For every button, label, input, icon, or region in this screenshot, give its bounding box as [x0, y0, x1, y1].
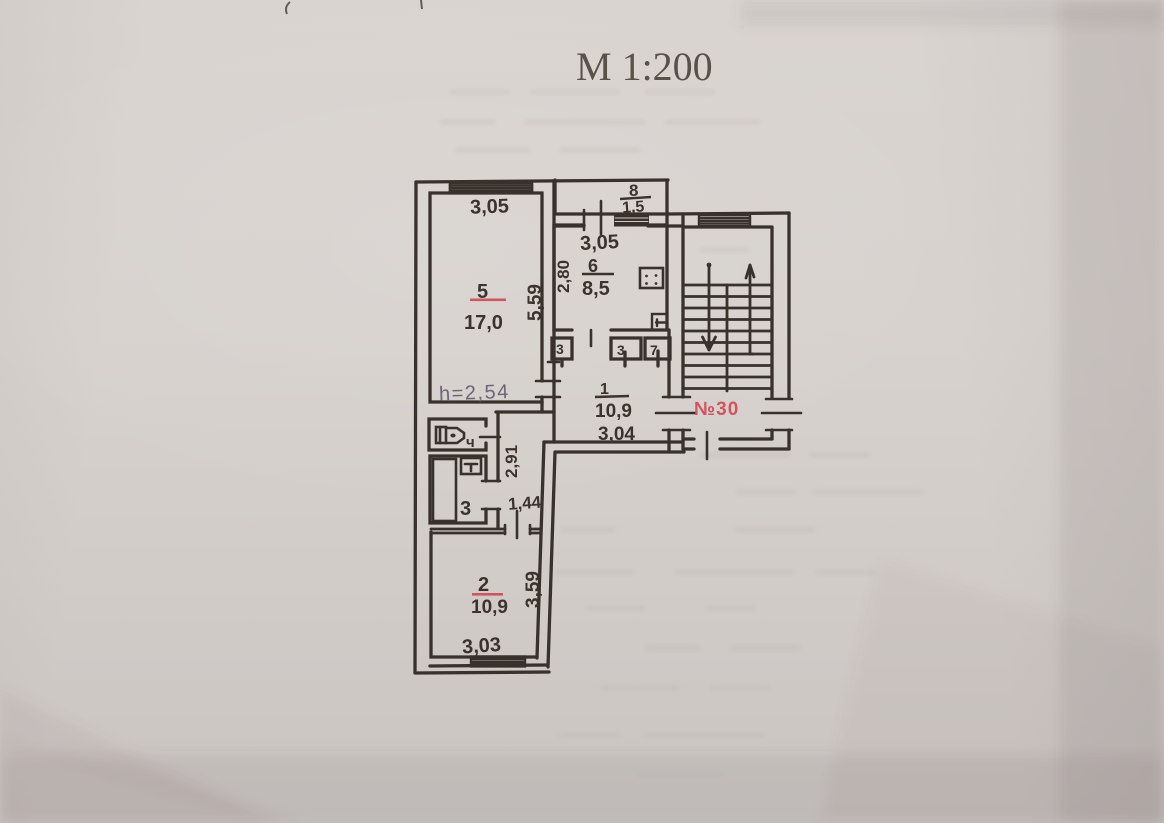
- svg-text:3,03: 3,03: [461, 634, 501, 659]
- svg-text:10,9: 10,9: [595, 401, 632, 422]
- svg-text:1,44: 1,44: [507, 493, 542, 514]
- svg-text:2,80: 2,80: [554, 260, 573, 293]
- svg-text:5,59: 5,59: [525, 284, 546, 321]
- svg-text:1,5: 1,5: [622, 198, 645, 217]
- svg-text:3: 3: [460, 498, 471, 520]
- svg-text:3: 3: [617, 342, 625, 358]
- svg-text:№30: №30: [694, 399, 739, 420]
- svg-text:3,04: 3,04: [598, 424, 635, 445]
- svg-text:3,05: 3,05: [579, 231, 619, 255]
- svg-text:3,05: 3,05: [470, 195, 510, 218]
- svg-text:M 1:200: M 1:200: [576, 44, 713, 89]
- svg-text:2: 2: [478, 574, 489, 596]
- svg-text:2,91: 2,91: [502, 445, 521, 478]
- svg-text:8,5: 8,5: [582, 278, 610, 300]
- svg-text:ч: ч: [466, 434, 475, 451]
- svg-text:3: 3: [556, 341, 564, 357]
- svg-text:3,59: 3,59: [523, 571, 544, 608]
- svg-text:7: 7: [650, 342, 658, 358]
- svg-text:17,0: 17,0: [464, 312, 503, 334]
- svg-text:10,9: 10,9: [471, 597, 508, 618]
- svg-text:h=2,54: h=2,54: [439, 381, 510, 405]
